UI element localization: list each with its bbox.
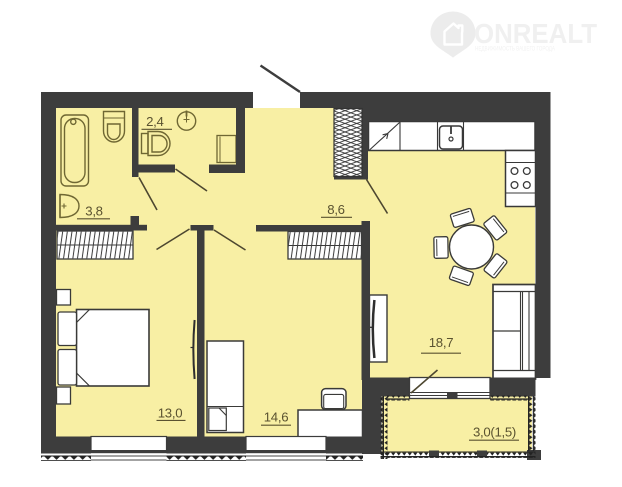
svg-text:14,6: 14,6 (264, 410, 288, 425)
svg-text:13,0: 13,0 (158, 405, 182, 420)
svg-text:8,6: 8,6 (327, 202, 344, 217)
svg-text:ONREALT: ONREALT (474, 18, 597, 49)
svg-text:2,4: 2,4 (146, 114, 163, 129)
svg-text:НЕДВИЖИМОСТЬ ВАШЕГО ГОРОДА: НЕДВИЖИМОСТЬ ВАШЕГО ГОРОДА (475, 47, 555, 53)
svg-text:18,7: 18,7 (429, 335, 453, 350)
svg-text:3,8: 3,8 (85, 203, 102, 218)
svg-text:3,0(1,5): 3,0(1,5) (473, 425, 516, 440)
